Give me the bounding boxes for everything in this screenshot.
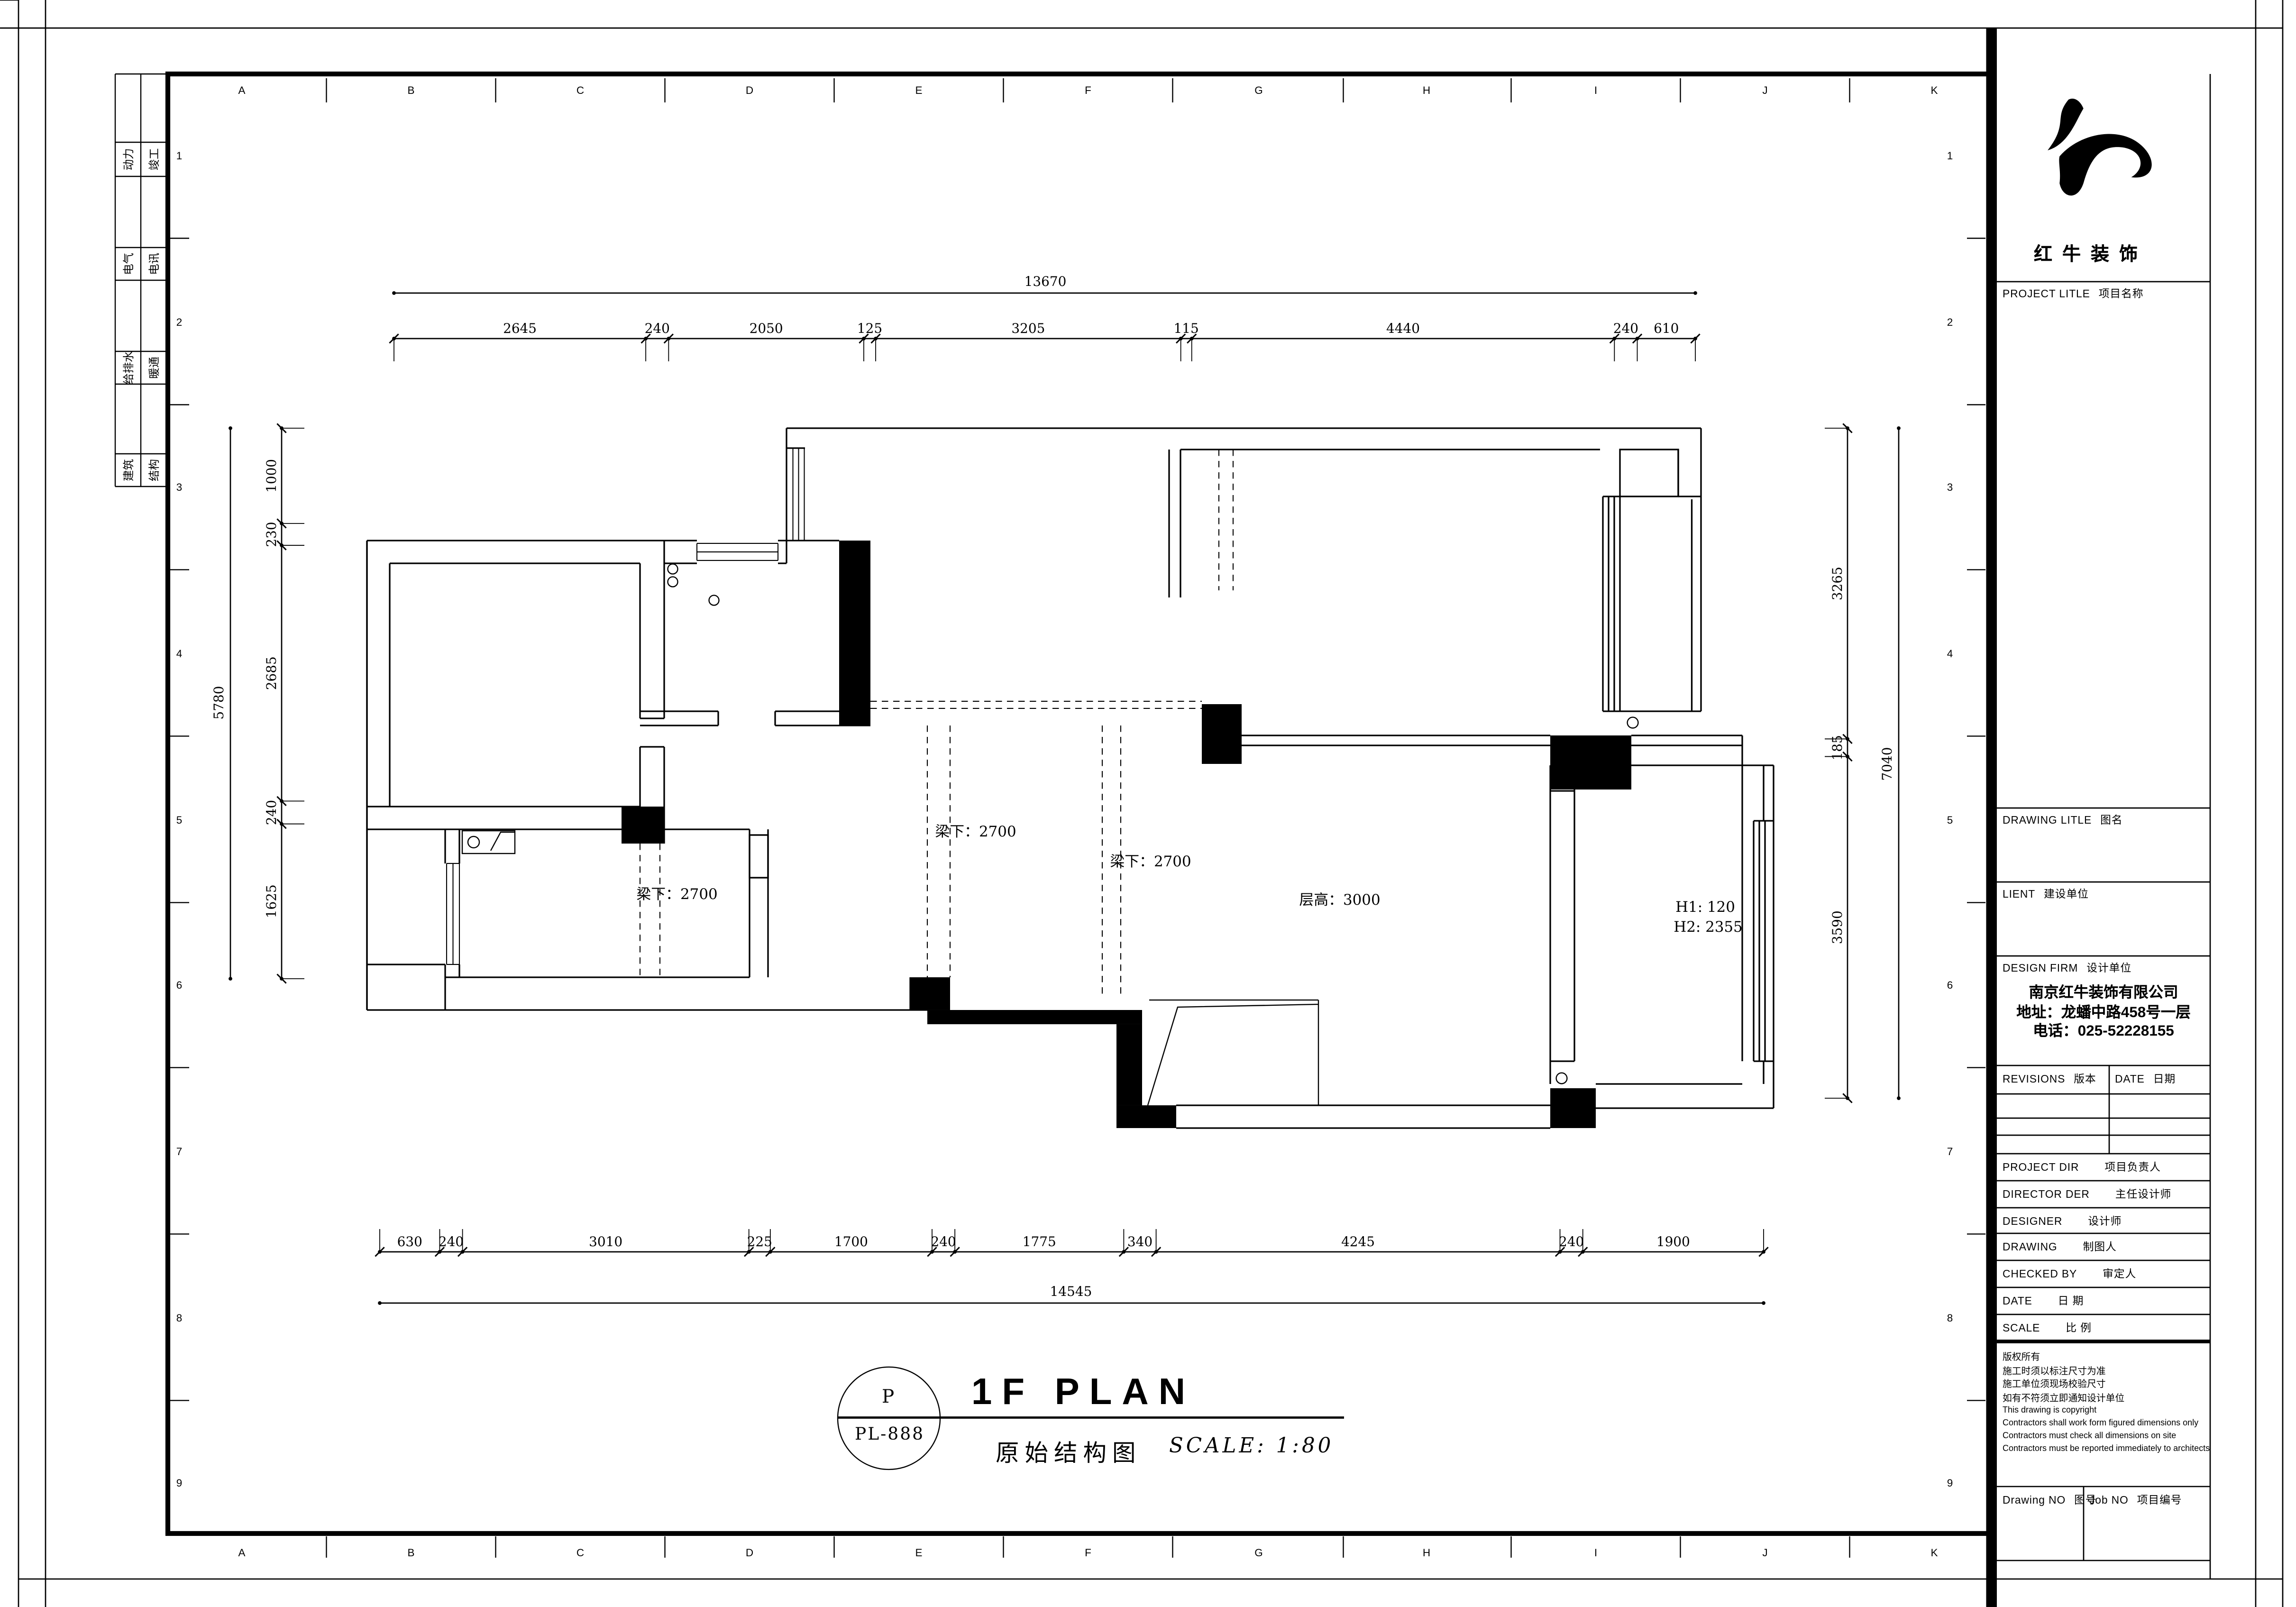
grid-letter: K [1930, 1547, 1938, 1559]
dimension-value: 3265 [1829, 567, 1845, 600]
shear-walls [622, 541, 1631, 1128]
grid-number: 7 [1947, 1146, 1953, 1157]
plan-annotations: 梁下：2700梁下：2700梁下：2700层高：3000H1: 120H2: 2… [636, 823, 1742, 936]
dimension-value: 630 [397, 1234, 422, 1249]
signature-row: DESIGNER设计师 [2003, 1213, 2122, 1229]
grid-letter: B [408, 1547, 415, 1559]
dimension-value: 1000 [264, 459, 279, 493]
revisions-label: REVISIONS版本 [2003, 1071, 2096, 1087]
dimension-value: 240 [439, 1234, 464, 1249]
dimension-value: 2685 [264, 656, 279, 690]
copyright-note-line: 如有不符须立即通知设计单位 [2003, 1392, 2210, 1406]
dimension-value: 115 [1174, 321, 1199, 336]
drawing-no-label: Drawing NO图号 [2003, 1492, 2096, 1508]
discipline-label: 结构 [148, 459, 160, 481]
dimension-total: 14545 [1050, 1284, 1092, 1299]
dimension-value: 240 [264, 800, 279, 825]
stamp-number: PL-888 [855, 1424, 924, 1444]
dimension-value: 340 [1127, 1234, 1153, 1249]
copyright-note-line: 施工时须以标注尺寸为准 [2003, 1365, 2210, 1379]
gas-pipe-icon [668, 564, 678, 574]
discipline-label: 动力 [122, 148, 135, 171]
copyright-note-line: Contractors must be reported immediately… [2003, 1444, 2210, 1457]
grid-letter: F [1085, 84, 1091, 96]
grid-number: 4 [176, 648, 183, 660]
grid-number: 8 [176, 1312, 183, 1324]
grid-letter: A [238, 84, 246, 96]
cad-canvas: AABBCCDDEEFFGGHHIIJJKK112233445566778899… [0, 0, 2296, 1607]
titleblock-bar [1986, 28, 1997, 1607]
dimension-value: 240 [931, 1234, 956, 1249]
plan-annotation: 梁下：2700 [636, 886, 717, 903]
pipe-icon [1556, 1073, 1567, 1084]
copyright-note-line: This drawing is copyright [2003, 1406, 2210, 1419]
drawing-title: 1F PLAN [971, 1370, 1195, 1414]
project-title-label: PROJECT LITLE项目名称 [2003, 286, 2143, 302]
grid-letter: J [1762, 84, 1767, 96]
plan-annotation: H2: 2355 [1674, 918, 1742, 936]
company-logo-icon [2048, 99, 2152, 195]
discipline-label: 电气 [122, 253, 135, 275]
grid-number: 7 [176, 1146, 183, 1157]
copyright-note-line: Contractors must check all dimensions on… [2003, 1432, 2210, 1444]
grid-letter: H [1423, 1547, 1430, 1559]
copyright-note-line: Contractors shall work form figured dime… [2003, 1419, 2210, 1432]
grid-number: 1 [1947, 150, 1953, 162]
grid-number: 9 [1947, 1477, 1953, 1489]
grid-letter: G [1254, 1547, 1263, 1559]
drawing-subtitle: 原始结构图 [996, 1434, 1142, 1468]
pipe-icon [1628, 717, 1638, 728]
discipline-label: 竣工 [148, 148, 160, 171]
grid-number: 6 [1947, 979, 1953, 991]
discipline-label: 给排水 [122, 351, 135, 384]
gas-pipe-icon [668, 577, 678, 587]
signature-row: PROJECT DIR项目负责人 [2003, 1159, 2161, 1175]
pipe-icon [709, 595, 719, 605]
grid-letter: E [915, 1547, 923, 1559]
drawing-sheet: AABBCCDDEEFFGGHHIIJJKK112233445566778899… [0, 0, 2296, 1607]
dimension-value: 1775 [1023, 1234, 1056, 1249]
company-logo-text: 红牛装饰 [2034, 239, 2148, 266]
copyright-note-line: 版权所有 [2003, 1351, 2210, 1365]
signature-row: SCALE比 例 [2003, 1320, 2092, 1335]
copyright-note-line: 施工单位须现场校验尺寸 [2003, 1379, 2210, 1393]
grid-number: 2 [176, 316, 183, 328]
window-glyphs [447, 448, 804, 964]
copyright-notes: 版权所有施工时须以标注尺寸为准施工单位须现场校验尺寸如有不符须立即通知设计单位T… [2003, 1351, 2210, 1457]
grid-references: AABBCCDDEEFFGGHHIIJJKK112233445566778899 [169, 78, 1985, 1559]
discipline-label: 建筑 [122, 459, 135, 481]
grid-number: 3 [176, 481, 183, 493]
dimension-value: 185 [1829, 735, 1845, 760]
job-no-label: Job NO项目编号 [2089, 1492, 2182, 1508]
grid-letter: E [915, 84, 923, 96]
grid-number: 9 [176, 1477, 183, 1489]
dimension-value: 4440 [1386, 321, 1420, 336]
grid-number: 1 [176, 150, 183, 162]
dimension-value: 610 [1654, 321, 1679, 336]
discipline-label: 暖通 [148, 357, 160, 379]
grid-number: 6 [176, 979, 183, 991]
plan-annotation: 层高：3000 [1299, 891, 1380, 909]
dimension-value: 4245 [1341, 1234, 1375, 1249]
grid-number: 2 [1947, 316, 1953, 328]
discipline-label: 电讯 [148, 253, 160, 275]
dimension-value: 1700 [834, 1234, 868, 1249]
plan-annotation: 梁下：2700 [935, 823, 1016, 840]
grid-letter: G [1254, 84, 1263, 96]
signature-row: DRAWING制图人 [2003, 1239, 2117, 1254]
signature-row: DATE日 期 [2003, 1293, 2084, 1308]
signature-row: DIRECTOR DER主任设计师 [2003, 1186, 2171, 1202]
sheet-borders [0, 0, 2283, 1607]
grid-letter: A [238, 1547, 246, 1559]
drawing-scale: SCALE: 1:80 [1169, 1435, 1334, 1458]
grid-number: 3 [1947, 481, 1953, 493]
grid-letter: J [1762, 1547, 1767, 1559]
design-firm-label: DESIGN FIRM设计单位 [2003, 960, 2131, 976]
grid-letter: H [1423, 84, 1430, 96]
dimension-value: 2645 [503, 321, 537, 336]
dimension-value: 1625 [264, 884, 279, 918]
grid-number: 5 [1947, 814, 1953, 826]
dimension-value: 2050 [750, 321, 783, 336]
dimension-value: 225 [747, 1234, 772, 1249]
washbasin-icon [462, 831, 515, 854]
plan-annotation: H1: 120 [1675, 899, 1735, 916]
dimension-total: 7040 [1879, 747, 1895, 781]
plan-annotation: 梁下：2700 [1110, 853, 1191, 870]
grid-letter: C [576, 84, 584, 96]
grid-number: 8 [1947, 1312, 1953, 1324]
beam-dashed-lines [640, 450, 1233, 996]
dimension-value: 3205 [1011, 321, 1045, 336]
stamp-letter: P [882, 1387, 894, 1408]
grid-letter: I [1594, 84, 1597, 96]
grid-letter: D [746, 84, 753, 96]
grid-letter: K [1930, 84, 1938, 96]
grid-number: 4 [1947, 648, 1953, 660]
signature-row: CHECKED BY审定人 [2003, 1266, 2136, 1281]
dimension-value: 240 [1613, 321, 1638, 336]
grid-letter: I [1594, 1547, 1597, 1559]
grid-letter: F [1085, 1547, 1091, 1559]
dimension-value: 230 [264, 522, 279, 547]
date-col-label: DATE日期 [2115, 1071, 2176, 1087]
dimension-value: 125 [857, 321, 882, 336]
dimension-total: 5780 [211, 686, 227, 720]
company-info: 南京红牛装饰有限公司 地址：龙蟠中路458号一层 电话：025-52228155 [1997, 984, 2210, 1042]
dimension-value: 3590 [1829, 910, 1845, 944]
discipline-table: 动力竣工电气电讯给排水暖通建筑结构 [115, 74, 166, 487]
dimension-value: 240 [1559, 1234, 1584, 1249]
grid-letter: C [576, 1547, 584, 1559]
dimension-total: 13670 [1025, 274, 1067, 289]
dimension-value: 1900 [1656, 1234, 1690, 1249]
grid-letter: D [746, 1547, 753, 1559]
client-label: LIENT建设单位 [2003, 886, 2089, 902]
drawing-title-label: DRAWING LITLE图名 [2003, 812, 2123, 828]
grid-number: 5 [176, 814, 183, 826]
dimension-value: 3010 [589, 1234, 622, 1249]
dimension-value: 240 [645, 321, 670, 336]
grid-letter: B [408, 84, 415, 96]
